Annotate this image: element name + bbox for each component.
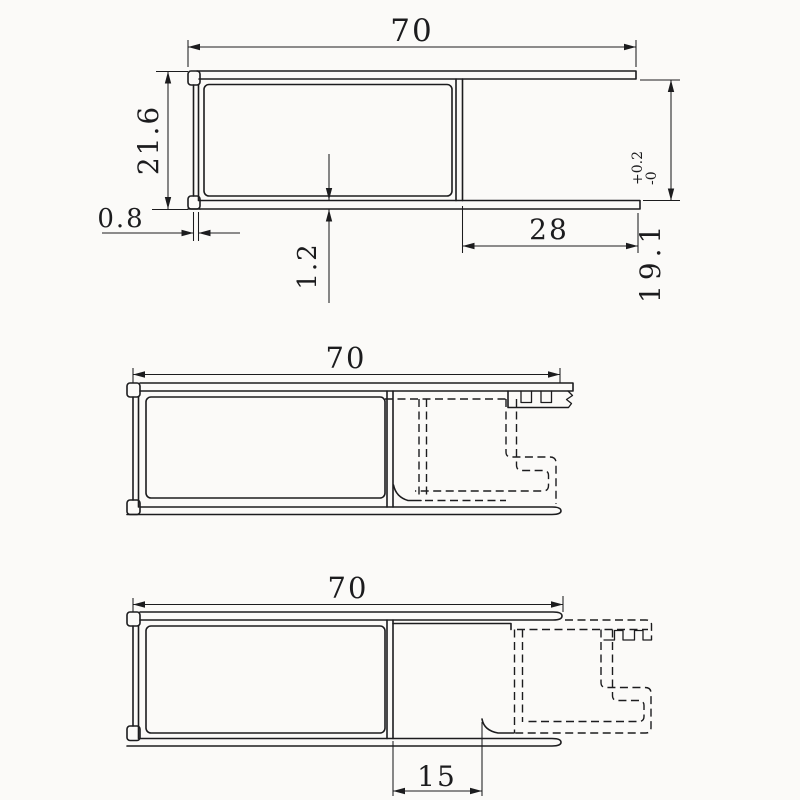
- bottom-hidden-sash: [515, 620, 652, 733]
- dim-channel-width: 28: [529, 213, 569, 246]
- bottom-dimensions: 70 15: [133, 571, 563, 796]
- top-dimensions: 70 21.6 0.8 1.2 28 19.1: [97, 13, 680, 303]
- top-section-view: 70 21.6 0.8 1.2 28 19.1: [97, 13, 680, 303]
- dim-middle-width: 70: [326, 341, 367, 375]
- dim-inner-height-tol-lower: -0: [644, 171, 660, 185]
- dim-web-thickness: 1.2: [293, 242, 323, 289]
- top-profile-outline: [188, 71, 640, 209]
- dim-top-height: 21.6: [132, 105, 165, 175]
- dim-bottom-width: 70: [328, 571, 369, 605]
- technical-drawing: 70 21.6 0.8 1.2 28 19.1: [0, 0, 800, 800]
- dim-sash-offset: 15: [417, 760, 457, 793]
- dim-inner-height: 19.1: [634, 221, 667, 303]
- bottom-frame-outline: [127, 612, 562, 746]
- middle-hidden-sash: [385, 399, 556, 504]
- dim-top-width: 70: [390, 13, 433, 49]
- drawing-sheet: 70 21.6 0.8 1.2 28 19.1: [0, 0, 800, 800]
- dim-wall-thickness: 0.8: [97, 204, 144, 234]
- bottom-assembly-view: 70 15: [127, 571, 652, 796]
- middle-assembly-view: 70: [127, 341, 573, 515]
- middle-dimensions: 70: [133, 341, 560, 383]
